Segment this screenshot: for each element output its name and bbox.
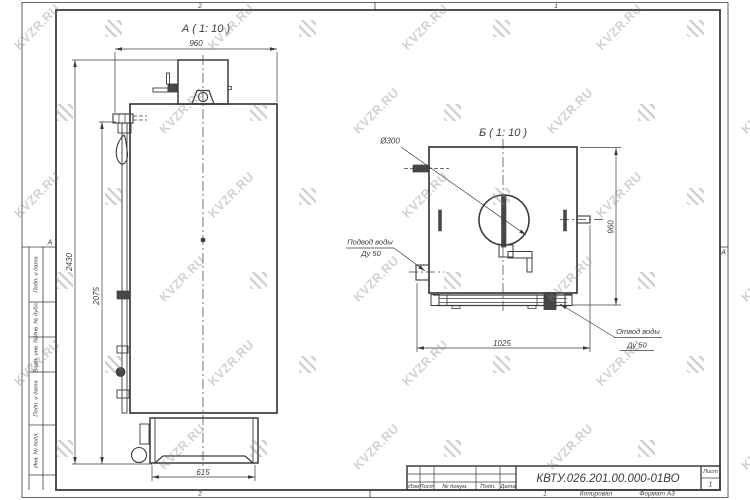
stamp-col-3: Взам. инв. № bbox=[34, 337, 40, 373]
view-side bbox=[72, 47, 277, 481]
outlet-label-line1: Отвод воды bbox=[616, 327, 660, 336]
stamp-col-5: Инв. № подл. bbox=[34, 432, 40, 468]
dim-front-height: 960 bbox=[607, 220, 616, 234]
tb-col-ndocum: № докум. bbox=[442, 484, 468, 490]
tb-col-list: Лист bbox=[419, 484, 435, 490]
tb-sheet-label: Лист bbox=[702, 469, 718, 475]
stamp-col-4: Подп. и дата bbox=[34, 380, 40, 417]
zone-top-left: 2 bbox=[197, 3, 202, 10]
zone-bottom-right: 1 bbox=[543, 491, 547, 498]
zone-right: А bbox=[720, 249, 726, 256]
inlet-label-line2: Ду 50 bbox=[360, 249, 381, 258]
tb-copied-label: Копировал bbox=[580, 491, 613, 498]
tb-col-izm: Изм bbox=[408, 484, 419, 490]
dim-front-width: 1025 bbox=[493, 339, 511, 348]
drawing-canvas: А ( 1: 10 ) 960 2430 2075 615 Б ( 1: 10 … bbox=[0, 0, 750, 500]
drawing-sheet: А ( 1: 10 ) 960 2430 2075 615 Б ( 1: 10 … bbox=[0, 0, 750, 500]
stamp-col-2: Инв. № дубл. bbox=[34, 302, 40, 338]
tb-col-podp: Подп. bbox=[480, 484, 495, 490]
tb-sheet-number: 1 bbox=[709, 481, 713, 488]
dim-height-body: 2075 bbox=[92, 287, 101, 306]
tb-doc-number: КВТУ.026.201.00.000-01ВО bbox=[536, 473, 679, 485]
zone-left: А bbox=[47, 239, 53, 246]
outlet-label-line2: Ду 50 bbox=[626, 340, 647, 349]
view-front bbox=[346, 139, 662, 352]
zone-top-right: 1 bbox=[554, 3, 558, 10]
dim-height-total: 2430 bbox=[65, 253, 74, 272]
stamp-col-1: Подп. и дата bbox=[34, 256, 40, 293]
tb-col-data: Дата bbox=[499, 484, 516, 490]
zone-bottom-left: 2 bbox=[197, 491, 202, 498]
dim-width-top: 960 bbox=[189, 39, 203, 48]
dim-base-width: 615 bbox=[196, 468, 210, 477]
dim-diameter: Ø300 bbox=[379, 137, 400, 146]
inlet-label-line1: Подвод воды bbox=[347, 237, 393, 246]
view-front-title: Б ( 1: 10 ) bbox=[479, 127, 527, 139]
view-side-title: А ( 1: 10 ) bbox=[181, 23, 231, 35]
tb-format-label: Формат А3 bbox=[639, 491, 675, 498]
